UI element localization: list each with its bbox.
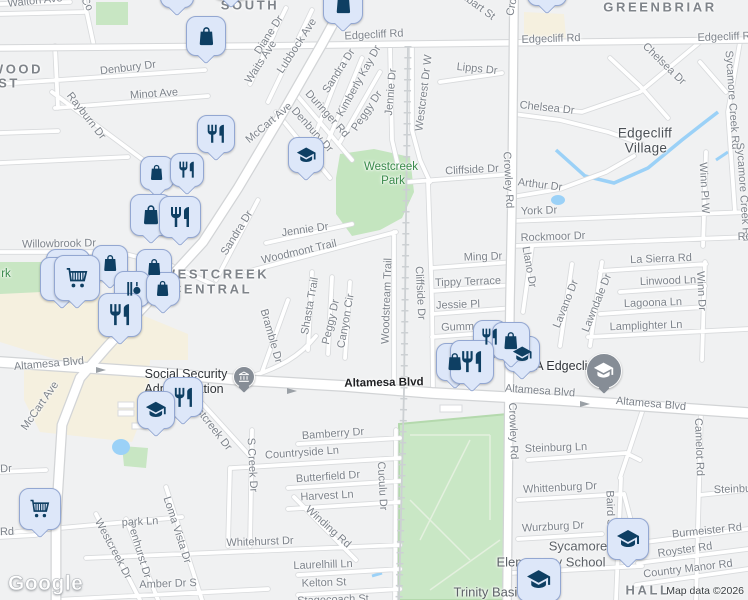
shopping-bag-marker[interactable] [186, 16, 226, 56]
map-data-attribution: Map data ©2026 [666, 585, 744, 597]
school-poi-pin[interactable] [586, 353, 622, 389]
restaurant-icon [107, 302, 132, 327]
shopping-bag-icon [332, 0, 355, 15]
shopping-bag-icon [500, 330, 522, 352]
map-canvas[interactable]: SOUTHGREENBRIARWOODSTWESTCREEKCENTRALHAL… [0, 0, 748, 600]
shopping-bag-icon [153, 279, 172, 298]
school-icon [526, 567, 551, 592]
grocery-cart-icon [64, 265, 90, 291]
map-markers-layer [0, 0, 748, 600]
restaurant-icon [177, 160, 196, 179]
shopping-bag-icon [147, 163, 166, 182]
restaurant-icon [480, 327, 499, 346]
restaurant-icon [459, 349, 484, 374]
school-marker[interactable] [137, 391, 175, 429]
shopping-bag-marker[interactable] [160, 0, 194, 8]
civic-building-poi-pin[interactable] [233, 366, 255, 388]
restaurant-icon [172, 386, 195, 409]
shopping-bag-icon [100, 253, 120, 273]
shopping-bag-icon [139, 203, 163, 227]
shopping-bag-marker[interactable] [323, 0, 363, 24]
grocery-cart-marker[interactable] [54, 255, 100, 301]
shopping-bag-marker[interactable] [527, 0, 567, 6]
restaurant-icon [168, 205, 192, 229]
restaurant-marker[interactable] [98, 293, 142, 337]
school-icon [145, 399, 167, 421]
restaurant-marker[interactable] [170, 153, 204, 187]
restaurant-marker[interactable] [197, 115, 235, 153]
bottles-icon [122, 279, 142, 299]
school-icon [616, 527, 640, 551]
shopping-bag-marker[interactable] [140, 156, 174, 190]
shopping-bag-icon [195, 25, 218, 48]
grocery-cart-marker[interactable] [19, 488, 61, 530]
restaurant-marker[interactable] [159, 196, 201, 238]
school-icon [296, 145, 316, 165]
school-marker[interactable] [288, 137, 324, 173]
school-marker[interactable] [607, 518, 649, 560]
civic-building-icon [238, 371, 250, 383]
google-logo: Google [8, 572, 83, 596]
grocery-cart-icon [28, 497, 52, 521]
school-marker[interactable] [517, 558, 561, 600]
shopping-bag-icon [144, 257, 164, 277]
school-icon [593, 360, 614, 381]
restaurant-icon [205, 123, 227, 145]
